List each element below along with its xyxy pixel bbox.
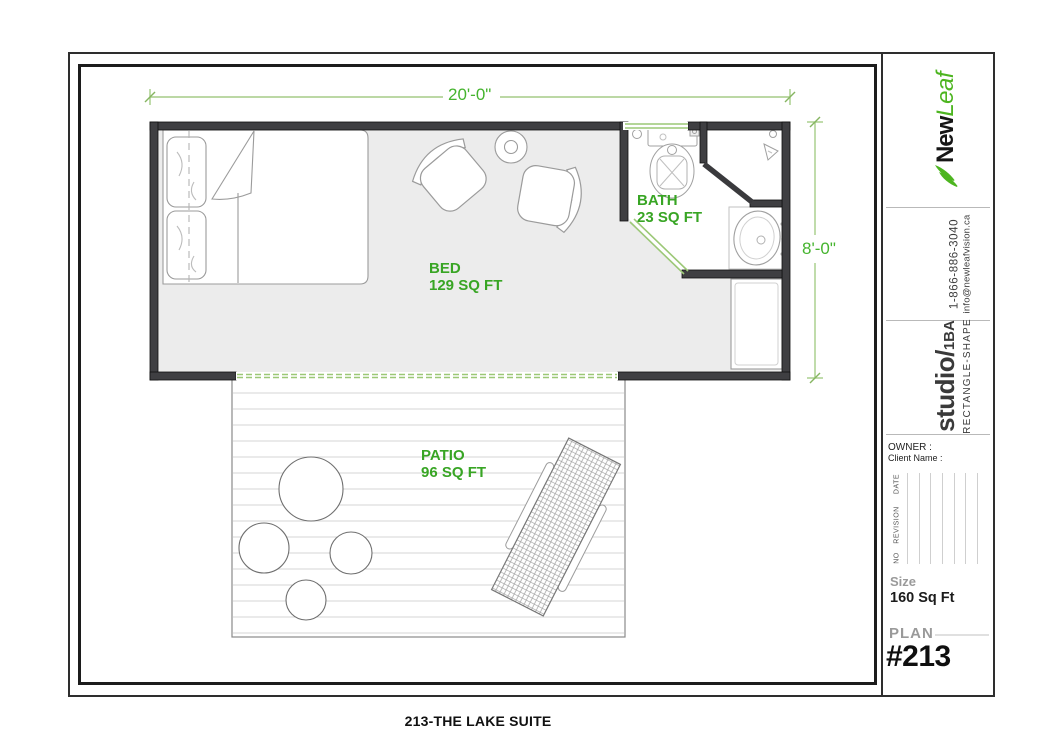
patio-room-label: PATIO 96 SQ FT [421,447,486,481]
bed-room-name: BED [429,260,502,277]
closet [731,279,782,369]
bath-room-name: BATH [637,192,702,209]
side-table [495,131,527,163]
bath-room-label: BATH 23 SQ FT [637,192,702,226]
height-dimension-label: 8'-0" [799,239,839,259]
toilet [648,128,697,198]
patio-room-name: PATIO [421,447,486,464]
patio-sliding-door [236,372,618,380]
floor-plan-drawing [0,0,1062,751]
bath-room-area: 23 SQ FT [637,209,702,226]
bed-room-label: BED 129 SQ FT [429,260,502,294]
window-bath [623,122,688,130]
width-dimension-label: 20'-0" [445,85,494,105]
bed-furniture [163,130,368,284]
floor-plan-sheet: BED 129 SQ FT BATH 23 SQ FT PATIO 96 SQ … [0,0,1062,751]
bed-room-area: 129 SQ FT [429,277,502,294]
bathroom-sink [729,207,788,269]
patio-room-area: 96 SQ FT [421,464,486,481]
